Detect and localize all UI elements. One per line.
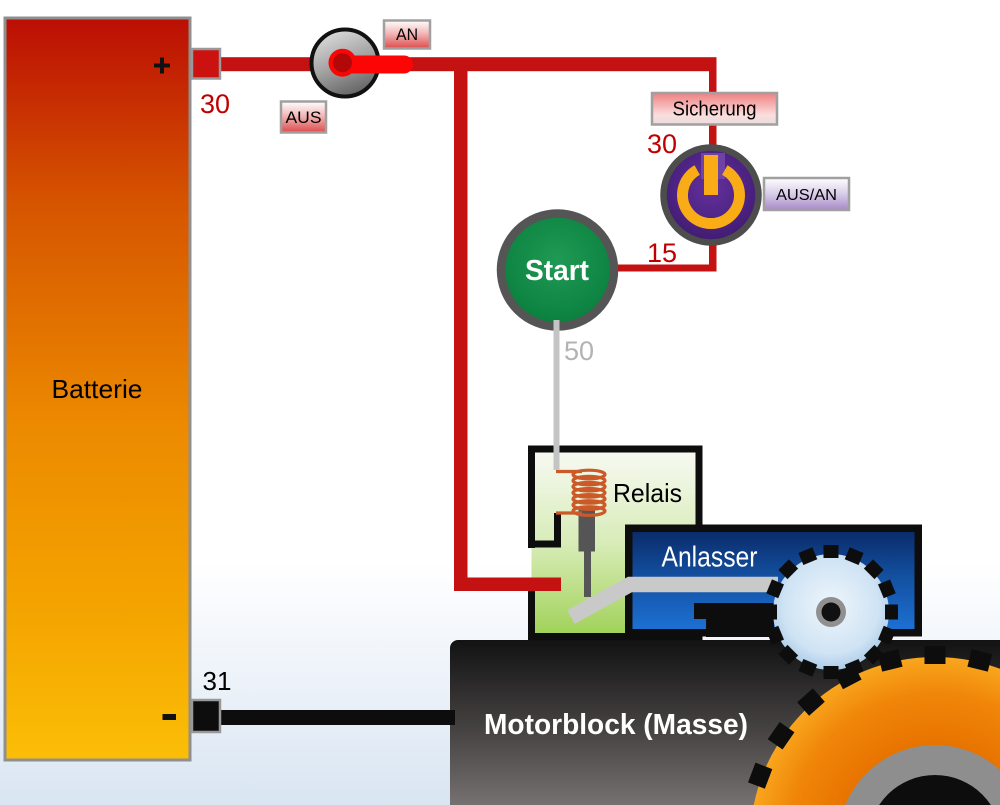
svg-text:AN: AN: [396, 26, 418, 44]
svg-text:Sicherung: Sicherung: [673, 99, 757, 121]
svg-text:Batterie: Batterie: [52, 374, 143, 404]
svg-text:15: 15: [647, 238, 677, 268]
svg-text:30: 30: [647, 129, 677, 159]
svg-text:Motorblock (Masse): Motorblock (Masse): [484, 709, 748, 741]
svg-text:AUS/AN: AUS/AN: [776, 187, 837, 204]
svg-text:31: 31: [203, 666, 232, 696]
svg-text:50: 50: [564, 336, 594, 366]
svg-text:AUS: AUS: [286, 109, 322, 127]
svg-text:Anlasser: Anlasser: [662, 542, 758, 574]
svg-text:Relais: Relais: [613, 478, 682, 508]
svg-text:Start: Start: [525, 255, 589, 287]
svg-text:30: 30: [200, 89, 230, 119]
